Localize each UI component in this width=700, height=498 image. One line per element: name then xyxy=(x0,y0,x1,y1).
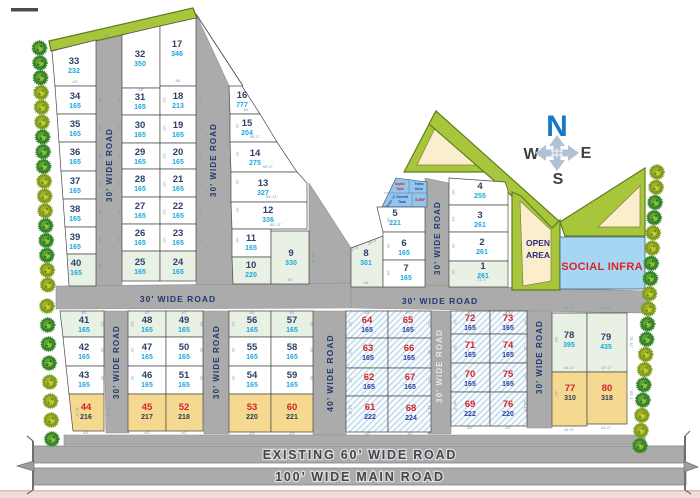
svg-text:Tank: Tank xyxy=(396,187,404,191)
svg-text:18: 18 xyxy=(173,91,184,102)
svg-text:33': 33' xyxy=(98,237,103,242)
svg-text:33': 33' xyxy=(309,347,314,352)
svg-text:33': 33' xyxy=(231,321,236,326)
svg-text:33': 33' xyxy=(162,237,167,242)
svg-text:10: 10 xyxy=(246,260,257,271)
svg-text:30’ WIDE ROAD: 30’ WIDE ROAD xyxy=(535,320,544,394)
svg-text:69'-11": 69'-11" xyxy=(270,222,283,227)
svg-text:165: 165 xyxy=(246,354,258,361)
svg-text:33': 33' xyxy=(117,181,122,186)
svg-text:57: 57 xyxy=(287,315,298,326)
svg-text:EXISTING 60’ WIDE ROAD: EXISTING 60’ WIDE ROAD xyxy=(263,448,458,462)
svg-text:W: W xyxy=(523,146,539,163)
svg-text:44'-6": 44'-6" xyxy=(348,405,353,416)
svg-text:165: 165 xyxy=(172,132,184,139)
svg-text:165: 165 xyxy=(134,240,146,247)
svg-text:70: 70 xyxy=(465,369,476,380)
svg-text:33': 33' xyxy=(309,321,314,326)
svg-text:395: 395 xyxy=(563,342,575,349)
svg-text:62'-1": 62'-1" xyxy=(629,391,634,402)
svg-text:33': 33' xyxy=(231,347,236,352)
svg-text:3: 3 xyxy=(477,210,482,221)
svg-text:261: 261 xyxy=(474,222,486,229)
svg-text:40': 40' xyxy=(505,425,510,430)
svg-text:165: 165 xyxy=(361,327,373,334)
svg-text:65: 65 xyxy=(403,315,414,326)
svg-text:S: S xyxy=(553,171,564,188)
svg-text:30: 30 xyxy=(135,120,146,131)
svg-text:165: 165 xyxy=(286,327,298,334)
svg-text:76: 76 xyxy=(503,399,514,410)
svg-text:64: 64 xyxy=(362,315,373,326)
svg-text:346: 346 xyxy=(171,51,183,58)
svg-text:45': 45' xyxy=(72,79,77,84)
svg-text:20: 20 xyxy=(173,147,184,158)
svg-text:33': 33' xyxy=(451,243,456,248)
svg-text:8: 8 xyxy=(363,248,368,259)
svg-text:165: 165 xyxy=(178,354,190,361)
svg-text:33: 33 xyxy=(69,56,80,67)
svg-text:165: 165 xyxy=(178,382,190,389)
svg-text:33': 33' xyxy=(453,319,458,324)
svg-text:60'-2": 60'-2" xyxy=(263,164,274,169)
svg-text:45': 45' xyxy=(287,277,292,282)
svg-text:33': 33' xyxy=(198,97,203,102)
svg-text:48: 48 xyxy=(142,315,153,326)
svg-text:33': 33' xyxy=(427,377,432,382)
svg-text:SOCIAL INFRA: SOCIAL INFRA xyxy=(561,261,643,273)
svg-text:12: 12 xyxy=(263,205,274,216)
svg-text:165: 165 xyxy=(246,327,258,334)
svg-text:40': 40' xyxy=(104,33,109,38)
svg-text:165: 165 xyxy=(134,269,146,276)
svg-text:33': 33' xyxy=(453,345,458,350)
svg-text:32: 32 xyxy=(135,49,146,60)
svg-text:33': 33' xyxy=(98,263,103,268)
svg-text:59: 59 xyxy=(287,370,298,381)
svg-text:OPEN: OPEN xyxy=(526,238,550,248)
svg-text:33': 33' xyxy=(198,125,203,130)
svg-text:44'-0": 44'-0" xyxy=(564,305,575,310)
svg-text:82': 82' xyxy=(554,337,559,342)
svg-text:165: 165 xyxy=(502,325,514,332)
svg-text:44'-11": 44'-11" xyxy=(523,400,528,413)
svg-text:43: 43 xyxy=(79,370,90,381)
svg-text:165: 165 xyxy=(141,327,153,334)
svg-text:40': 40' xyxy=(249,431,254,436)
svg-text:35: 35 xyxy=(70,119,81,130)
svg-text:40': 40' xyxy=(407,431,412,436)
svg-text:40': 40' xyxy=(81,310,86,315)
svg-text:33': 33' xyxy=(98,181,103,186)
svg-text:232: 232 xyxy=(68,68,80,75)
svg-text:165: 165 xyxy=(69,103,81,110)
svg-text:Overhd: Overhd xyxy=(396,195,408,199)
svg-text:63: 63 xyxy=(363,343,374,354)
svg-text:60'-6": 60'-6" xyxy=(601,305,612,310)
svg-text:33': 33' xyxy=(386,270,391,275)
svg-text:33': 33' xyxy=(198,181,203,186)
svg-text:33': 33' xyxy=(130,347,135,352)
svg-text:17: 17 xyxy=(172,39,183,50)
svg-text:27: 27 xyxy=(135,201,146,212)
svg-text:53: 53 xyxy=(247,402,258,413)
svg-text:33': 33' xyxy=(162,181,167,186)
svg-text:40': 40' xyxy=(289,310,294,315)
svg-text:40': 40' xyxy=(364,310,369,315)
svg-text:217: 217 xyxy=(141,414,153,421)
svg-text:310: 310 xyxy=(564,395,576,402)
svg-text:71: 71 xyxy=(465,340,476,351)
svg-text:220: 220 xyxy=(246,414,258,421)
svg-text:33': 33' xyxy=(523,345,528,350)
svg-text:224: 224 xyxy=(405,415,417,422)
svg-text:16: 16 xyxy=(237,90,248,101)
svg-text:40’ WIDE ROAD: 40’ WIDE ROAD xyxy=(325,334,335,412)
svg-text:165: 165 xyxy=(464,381,476,388)
svg-text:40': 40' xyxy=(181,310,186,315)
svg-text:30’ WIDE ROAD: 30’ WIDE ROAD xyxy=(435,329,444,403)
svg-text:66'-4": 66'-4" xyxy=(311,253,316,264)
svg-text:33': 33' xyxy=(117,237,122,242)
svg-text:14: 14 xyxy=(250,148,261,159)
svg-text:49: 49 xyxy=(179,315,190,326)
svg-text:165: 165 xyxy=(69,188,81,195)
svg-text:165: 165 xyxy=(502,352,514,359)
svg-text:44'-0": 44'-0" xyxy=(601,425,612,430)
svg-text:40': 40' xyxy=(144,430,149,435)
svg-text:33': 33' xyxy=(451,189,456,194)
svg-text:165: 165 xyxy=(245,245,257,252)
svg-text:66: 66 xyxy=(404,343,415,354)
svg-text:75: 75 xyxy=(503,369,514,380)
svg-text:33': 33' xyxy=(199,347,204,352)
svg-text:30’ WIDE ROAD: 30’ WIDE ROAD xyxy=(212,325,221,399)
svg-text:40': 40' xyxy=(365,431,370,436)
svg-text:AREA: AREA xyxy=(526,250,550,260)
svg-text:30’ WIDE ROAD: 30’ WIDE ROAD xyxy=(105,128,114,202)
svg-text:71'-1": 71'-1" xyxy=(477,277,488,282)
svg-text:33': 33' xyxy=(427,321,432,326)
svg-text:30’ WIDE ROAD: 30’ WIDE ROAD xyxy=(112,325,121,399)
svg-text:9: 9 xyxy=(288,248,293,259)
svg-text:222: 222 xyxy=(464,411,476,418)
svg-text:79'-11": 79'-11" xyxy=(629,336,634,349)
svg-text:350: 350 xyxy=(134,61,146,68)
svg-text:165: 165 xyxy=(402,327,414,334)
svg-text:165: 165 xyxy=(69,244,81,251)
svg-text:33': 33' xyxy=(348,377,353,382)
svg-text:82': 82' xyxy=(554,391,559,396)
svg-text:45': 45' xyxy=(363,280,368,285)
svg-text:165: 165 xyxy=(172,159,184,166)
svg-text:100’ WIDE MAIN ROAD: 100’ WIDE MAIN ROAD xyxy=(275,470,445,484)
svg-text:78: 78 xyxy=(564,330,575,341)
svg-text:Septic: Septic xyxy=(395,182,405,186)
svg-text:213: 213 xyxy=(172,103,184,110)
svg-text:165: 165 xyxy=(246,382,258,389)
svg-text:28: 28 xyxy=(135,174,146,185)
svg-text:165: 165 xyxy=(134,104,146,111)
svg-text:E: E xyxy=(581,145,592,162)
svg-text:79: 79 xyxy=(601,332,612,343)
svg-text:44'-3": 44'-3" xyxy=(453,401,458,412)
svg-text:80: 80 xyxy=(602,383,613,394)
svg-text:165: 165 xyxy=(400,275,412,282)
svg-text:435: 435 xyxy=(600,344,612,351)
svg-text:165: 165 xyxy=(362,355,374,362)
svg-text:33': 33' xyxy=(235,207,240,212)
svg-text:44: 44 xyxy=(81,402,92,413)
svg-text:Tank: Tank xyxy=(398,200,406,204)
svg-text:30’ WIDE ROAD: 30’ WIDE ROAD xyxy=(402,296,478,306)
svg-text:40': 40' xyxy=(467,425,472,430)
svg-text:46': 46' xyxy=(175,78,180,83)
svg-text:46: 46 xyxy=(142,370,153,381)
svg-text:165: 165 xyxy=(464,352,476,359)
svg-text:37: 37 xyxy=(70,176,81,187)
svg-text:33': 33' xyxy=(523,319,528,324)
svg-text:45: 45 xyxy=(142,402,153,413)
svg-text:SUMP: SUMP xyxy=(415,198,426,202)
svg-text:222: 222 xyxy=(364,414,376,421)
svg-text:33': 33' xyxy=(100,321,105,326)
svg-text:33': 33' xyxy=(130,321,135,326)
svg-text:165: 165 xyxy=(134,132,146,139)
svg-text:33': 33' xyxy=(235,123,240,128)
svg-text:-67'-2": -67'-2" xyxy=(600,365,612,370)
svg-text:165: 165 xyxy=(464,325,476,332)
svg-text:25: 25 xyxy=(135,257,146,268)
svg-text:15: 15 xyxy=(242,118,253,129)
svg-text:33': 33' xyxy=(98,125,103,130)
svg-text:218: 218 xyxy=(178,414,190,421)
svg-text:33': 33' xyxy=(523,373,528,378)
svg-text:33': 33' xyxy=(100,375,105,380)
svg-text:44'-6": 44'-6" xyxy=(564,427,575,432)
svg-text:165: 165 xyxy=(398,250,410,257)
svg-text:50: 50 xyxy=(179,342,190,353)
svg-text:220: 220 xyxy=(245,272,257,279)
svg-text:33': 33' xyxy=(162,97,167,102)
svg-text:2: 2 xyxy=(479,237,484,248)
svg-text:165: 165 xyxy=(134,159,146,166)
svg-text:33': 33' xyxy=(348,321,353,326)
svg-text:165: 165 xyxy=(286,382,298,389)
svg-text:165: 165 xyxy=(78,354,90,361)
svg-text:40': 40' xyxy=(289,431,294,436)
svg-text:220: 220 xyxy=(502,411,514,418)
svg-text:11: 11 xyxy=(246,233,257,244)
svg-text:77: 77 xyxy=(565,383,576,394)
svg-text:33': 33' xyxy=(162,125,167,130)
svg-text:30’ WIDE ROAD: 30’ WIDE ROAD xyxy=(433,201,442,275)
svg-text:221: 221 xyxy=(286,414,298,421)
svg-text:33': 33' xyxy=(162,209,167,214)
svg-text:165: 165 xyxy=(69,159,81,166)
svg-text:165: 165 xyxy=(134,213,146,220)
svg-text:74: 74 xyxy=(503,340,514,351)
svg-text:330: 330 xyxy=(285,260,297,267)
svg-text:33': 33' xyxy=(198,153,203,158)
svg-text:33': 33' xyxy=(235,237,240,242)
svg-text:Trans: Trans xyxy=(414,182,423,186)
svg-text:33': 33' xyxy=(98,97,103,102)
svg-text:45'-4": 45'-4" xyxy=(106,407,111,418)
svg-text:69'-11": 69'-11" xyxy=(266,194,279,199)
svg-text:165: 165 xyxy=(70,270,82,277)
svg-text:33': 33' xyxy=(453,373,458,378)
svg-text:44'-9": 44'-9" xyxy=(427,405,432,416)
svg-text:38: 38 xyxy=(70,204,81,215)
svg-text:33': 33' xyxy=(451,269,456,274)
svg-text:165: 165 xyxy=(134,186,146,193)
svg-text:7: 7 xyxy=(403,263,408,274)
svg-text:45': 45' xyxy=(138,87,143,92)
svg-text:47: 47 xyxy=(142,342,153,353)
svg-text:21: 21 xyxy=(173,174,184,185)
svg-text:33': 33' xyxy=(117,97,122,102)
svg-text:40': 40' xyxy=(83,430,88,435)
svg-text:5: 5 xyxy=(392,208,398,219)
svg-text:165: 165 xyxy=(502,381,514,388)
svg-text:36: 36 xyxy=(70,147,81,158)
svg-text:165: 165 xyxy=(172,213,184,220)
svg-text:6: 6 xyxy=(401,238,406,249)
svg-text:65'-2": 65'-2" xyxy=(250,134,261,139)
svg-text:165: 165 xyxy=(172,186,184,193)
svg-text:69: 69 xyxy=(465,399,476,410)
svg-text:165: 165 xyxy=(172,240,184,247)
svg-text:165: 165 xyxy=(404,384,416,391)
svg-text:43': 43' xyxy=(467,310,472,315)
svg-text:33': 33' xyxy=(235,151,240,156)
svg-text:23: 23 xyxy=(173,228,184,239)
svg-text:4: 4 xyxy=(477,181,483,192)
svg-text:42'-2": 42'-2" xyxy=(75,407,80,418)
svg-text:33': 33' xyxy=(198,209,203,214)
svg-text:33': 33' xyxy=(199,321,204,326)
svg-text:33': 33' xyxy=(386,217,391,222)
svg-text:33': 33' xyxy=(162,153,167,158)
svg-text:22: 22 xyxy=(173,201,184,212)
svg-text:40': 40' xyxy=(181,430,186,435)
svg-text:165: 165 xyxy=(286,354,298,361)
svg-text:33': 33' xyxy=(309,375,314,380)
svg-text:42: 42 xyxy=(79,342,90,353)
svg-text:318: 318 xyxy=(601,395,613,402)
svg-text:33': 33' xyxy=(98,153,103,158)
svg-text:62: 62 xyxy=(364,372,375,383)
svg-text:56: 56 xyxy=(247,315,258,326)
svg-text:30’ WIDE ROAD: 30’ WIDE ROAD xyxy=(209,123,218,197)
svg-text:40: 40 xyxy=(71,258,82,269)
svg-text:58: 58 xyxy=(287,342,298,353)
svg-text:41: 41 xyxy=(79,315,90,326)
svg-text:33': 33' xyxy=(130,375,135,380)
svg-text:33': 33' xyxy=(348,349,353,354)
svg-text:39: 39 xyxy=(70,232,81,243)
svg-text:33': 33' xyxy=(451,216,456,221)
svg-text:40': 40' xyxy=(249,310,254,315)
svg-text:40': 40' xyxy=(144,310,149,315)
svg-text:33': 33' xyxy=(100,347,105,352)
svg-text:31: 31 xyxy=(135,92,146,103)
svg-text:165: 165 xyxy=(403,355,415,362)
svg-text:255: 255 xyxy=(474,193,486,200)
svg-text:33': 33' xyxy=(235,179,240,184)
svg-text:46': 46' xyxy=(243,107,248,112)
svg-text:52: 52 xyxy=(179,402,190,413)
svg-text:165: 165 xyxy=(141,354,153,361)
svg-text:165: 165 xyxy=(78,382,90,389)
svg-text:26: 26 xyxy=(135,228,146,239)
svg-text:61: 61 xyxy=(365,402,376,413)
svg-text:33': 33' xyxy=(199,375,204,380)
svg-text:275: 275 xyxy=(249,160,261,167)
svg-text:33': 33' xyxy=(117,153,122,158)
svg-text:40': 40' xyxy=(405,310,410,315)
svg-text:24: 24 xyxy=(173,257,184,268)
svg-text:68: 68 xyxy=(406,403,417,414)
svg-text:165: 165 xyxy=(78,327,90,334)
svg-text:13: 13 xyxy=(258,178,269,189)
svg-text:44'-0": 44'-0" xyxy=(564,365,575,370)
svg-text:33': 33' xyxy=(117,125,122,130)
svg-text:165: 165 xyxy=(69,131,81,138)
svg-text:33': 33' xyxy=(231,375,236,380)
svg-text:165: 165 xyxy=(172,269,184,276)
svg-text:165: 165 xyxy=(178,327,190,334)
svg-text:165: 165 xyxy=(141,382,153,389)
svg-text:216: 216 xyxy=(80,414,92,421)
svg-text:51: 51 xyxy=(179,370,190,381)
svg-text:33': 33' xyxy=(427,349,432,354)
svg-text:form: form xyxy=(415,187,423,191)
svg-text:33': 33' xyxy=(117,209,122,214)
svg-text:34: 34 xyxy=(70,91,81,102)
svg-text:33': 33' xyxy=(386,243,391,248)
svg-text:55: 55 xyxy=(247,342,258,353)
svg-text:60: 60 xyxy=(287,402,298,413)
svg-text:261: 261 xyxy=(476,249,488,256)
svg-text:54: 54 xyxy=(247,370,258,381)
svg-text:165: 165 xyxy=(69,216,81,223)
svg-text:43': 43' xyxy=(505,310,510,315)
svg-text:30’ WIDE ROAD: 30’ WIDE ROAD xyxy=(140,294,216,304)
svg-text:33': 33' xyxy=(198,237,203,242)
svg-text:301: 301 xyxy=(360,260,372,267)
svg-text:19: 19 xyxy=(173,120,184,131)
svg-text:67: 67 xyxy=(405,372,416,383)
svg-text:1: 1 xyxy=(480,261,486,272)
svg-text:29: 29 xyxy=(135,147,146,158)
svg-text:165: 165 xyxy=(363,384,375,391)
svg-text:33': 33' xyxy=(98,209,103,214)
